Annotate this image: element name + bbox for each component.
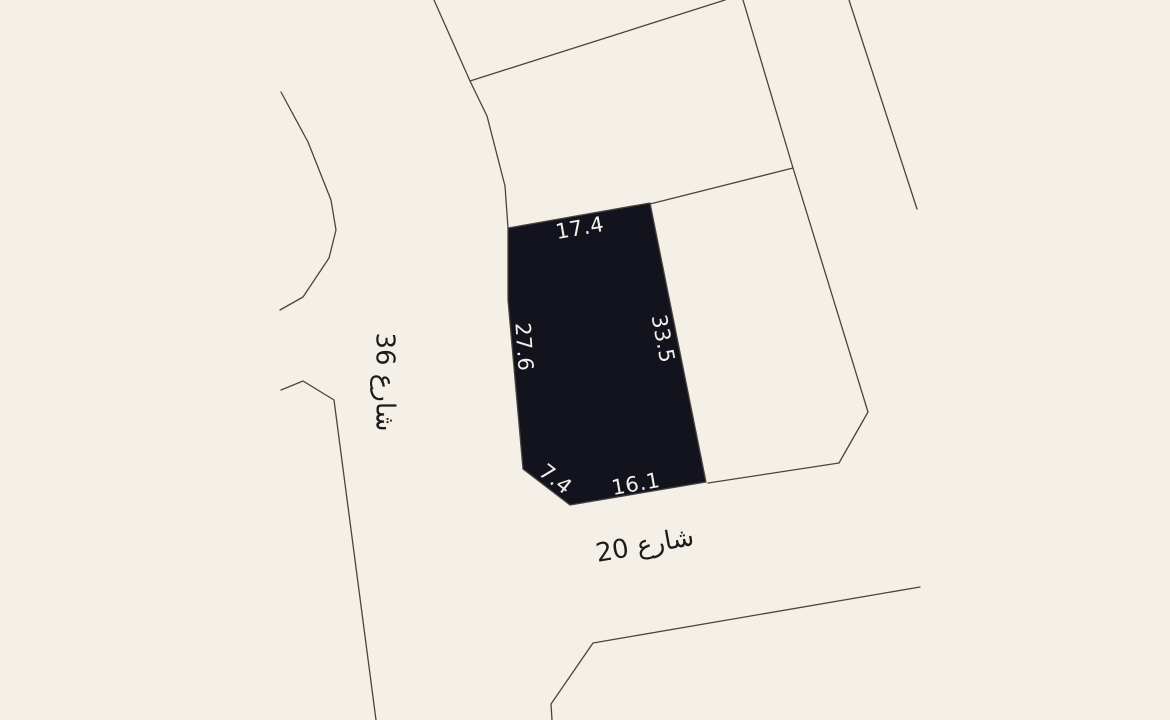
street-name-label-0: شارع 36 [370,332,400,431]
parcel-dimension-label-2: 27.6 [510,322,537,372]
map-canvas: 17.433.527.67.416.1شارع 36شارع 20 [0,0,1170,720]
cadastral-map: 17.433.527.67.416.1شارع 36شارع 20 [0,0,1170,720]
